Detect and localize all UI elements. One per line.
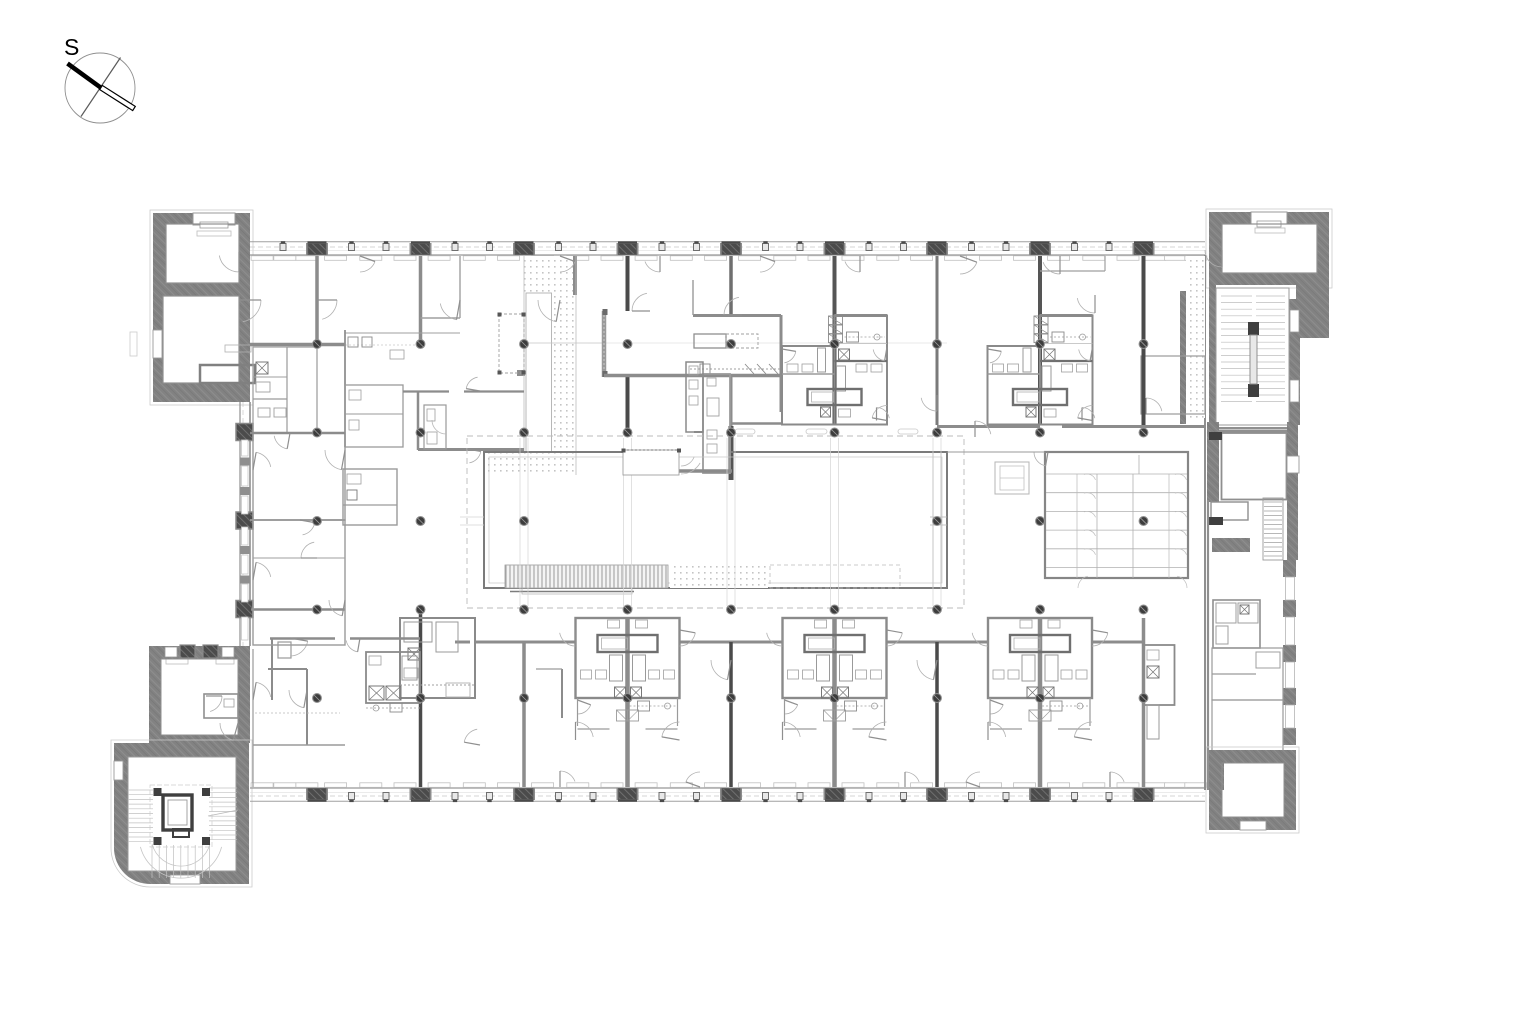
svg-text:S: S [64,34,79,60]
